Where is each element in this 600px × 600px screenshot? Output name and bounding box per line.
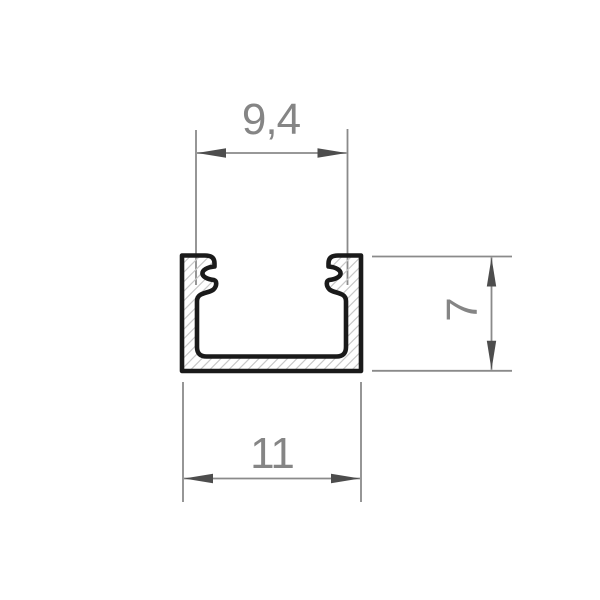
arrow-right-icon [318, 148, 347, 157]
arrow-down-icon [487, 341, 496, 370]
arrow-right-icon [331, 474, 360, 483]
profile-outline [182, 256, 361, 372]
height-label: 7 [438, 298, 487, 321]
outer-width-label: 11 [250, 429, 294, 478]
dimension-height: 7 [372, 257, 512, 371]
arrow-left-icon [184, 474, 213, 483]
drawing-canvas: 9,4 11 7 [0, 0, 600, 600]
inner-width-label: 9,4 [242, 95, 301, 144]
dimension-outer-width: 11 [183, 382, 361, 502]
dimension-inner-width: 9,4 [196, 95, 348, 285]
technical-drawing: 9,4 11 7 [0, 0, 600, 600]
arrow-up-icon [487, 258, 496, 287]
arrow-left-icon [197, 148, 226, 157]
